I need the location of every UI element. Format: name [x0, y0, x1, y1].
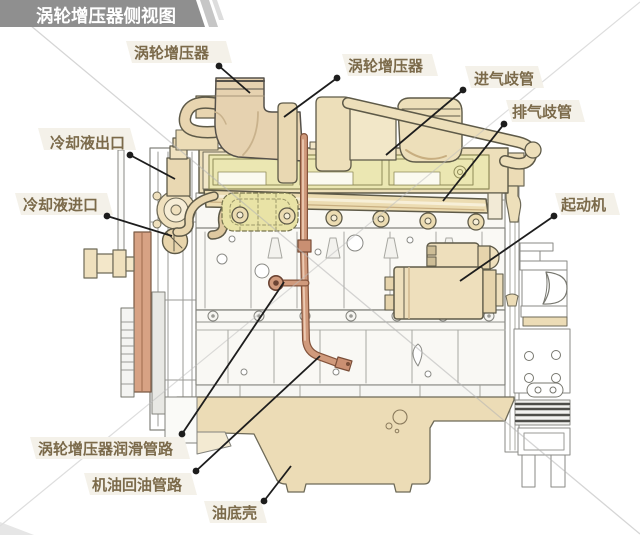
svg-text:涡轮增压器润滑管路: 涡轮增压器润滑管路 — [38, 440, 174, 458]
svg-text:机油回油管路: 机油回油管路 — [92, 476, 183, 494]
svg-text:涡轮增压器: 涡轮增压器 — [348, 57, 424, 75]
svg-text:进气歧管: 进气歧管 — [474, 70, 534, 88]
svg-text:冷却液出口: 冷却液出口 — [50, 134, 125, 152]
svg-text:起动机: 起动机 — [560, 196, 606, 214]
svg-text:油底壳: 油底壳 — [212, 504, 257, 522]
svg-text:排气歧管: 排气歧管 — [512, 103, 572, 121]
svg-text:涡轮增压器: 涡轮增压器 — [134, 44, 210, 62]
svg-text:冷却液进口: 冷却液进口 — [23, 196, 98, 214]
svg-text:涡轮增压器侧视图: 涡轮增压器侧视图 — [36, 6, 176, 26]
